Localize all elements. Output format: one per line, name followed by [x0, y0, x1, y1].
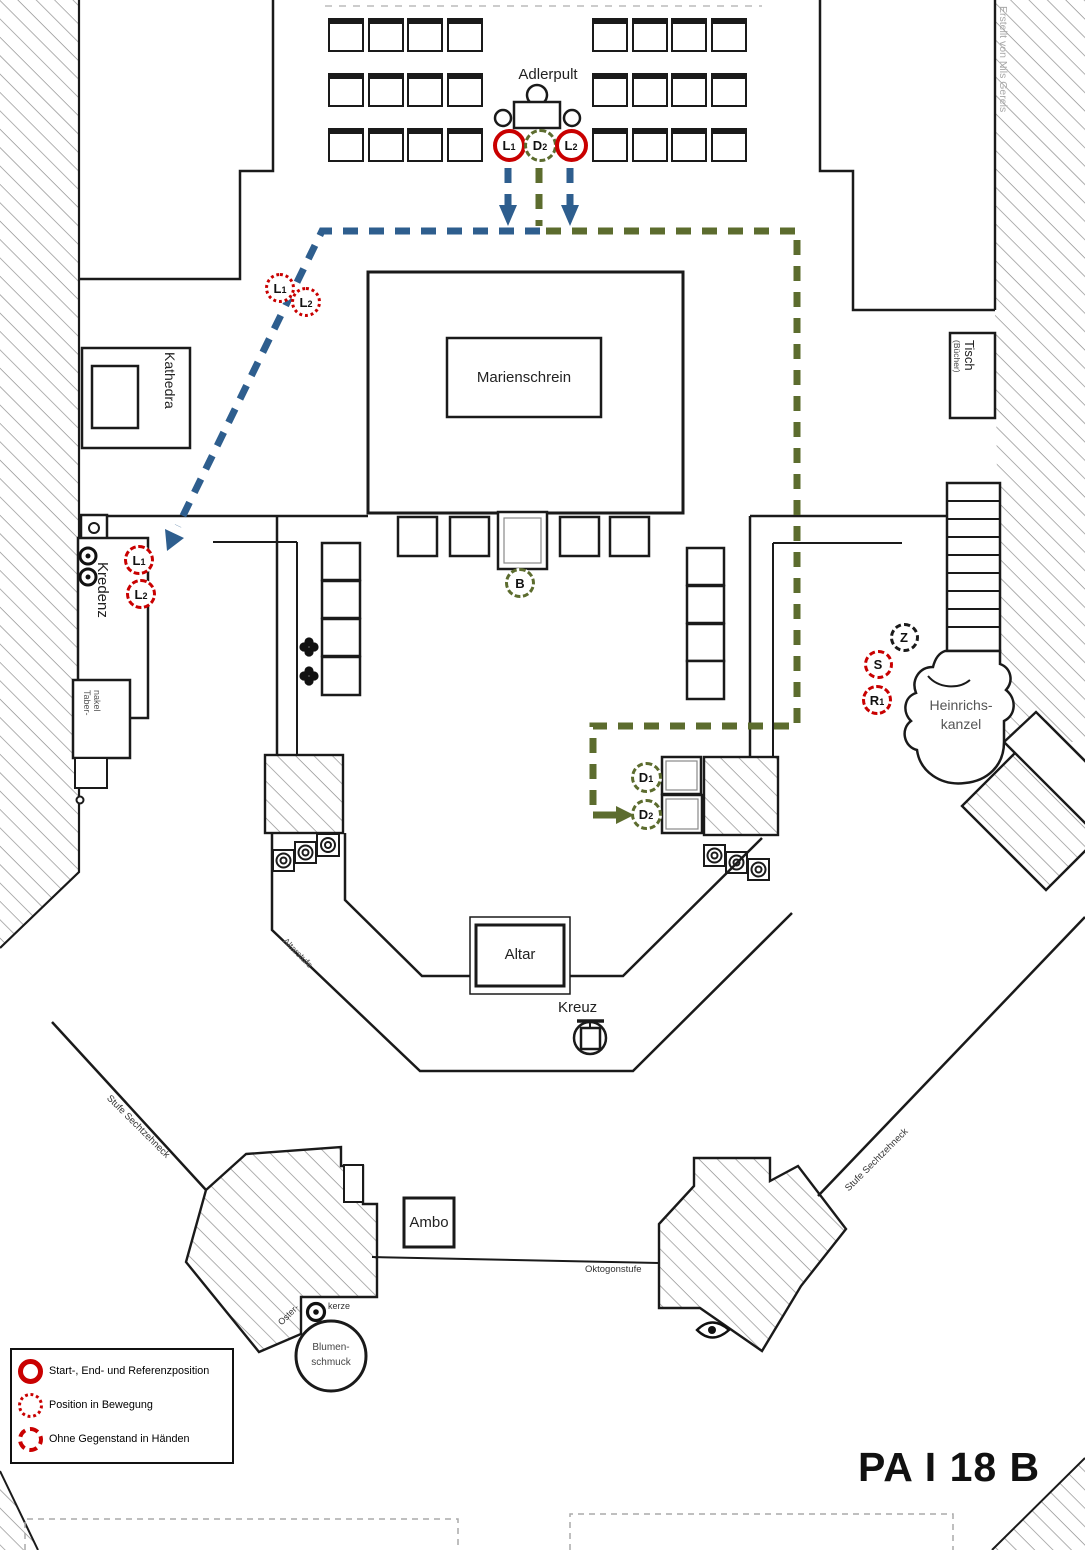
ambo-label: Ambo — [404, 1198, 454, 1247]
hatched-walls — [0, 0, 1085, 1550]
floorplan-graphics — [0, 0, 1085, 1550]
legend-item-label: Position in Bewegung — [49, 1399, 153, 1411]
flower-stand-icons — [299, 637, 318, 685]
tabernakel-label-1: Taber- — [82, 690, 92, 752]
blumenschmuck-label: Blumen- schmuck — [296, 1340, 366, 1370]
osterkerze-symbol — [308, 1304, 325, 1321]
tabernakel-label: Taber- nakel — [82, 690, 102, 752]
oktogonstufe-label: Oktogonstufe — [585, 1264, 642, 1275]
adlerpult-symbol — [495, 85, 580, 128]
kreuz-label: Kreuz — [558, 999, 597, 1016]
legend-item-moving: Position in Bewegung — [18, 1388, 232, 1422]
marienschrein-label: Marienschrein — [447, 338, 601, 417]
tisch-label-main: Tisch — [962, 340, 977, 415]
path-deacon-green-arrow — [593, 806, 634, 824]
heinrichskanzel-label-1: Heinrichs- — [916, 696, 1006, 715]
tabernakel-label-2: nakel — [92, 690, 102, 752]
pillar-left — [265, 755, 343, 833]
credit-label: Erstellt von Nils Gereis — [997, 6, 1009, 176]
tisch-label-sub: (Bücher) — [952, 340, 962, 415]
hall-walls — [79, 0, 995, 310]
faint-outline-bottom-left — [25, 1519, 458, 1550]
legend-item-label: Ohne Gegenstand in Händen — [49, 1433, 189, 1445]
tisch-label: Tisch (Bücher) — [952, 340, 977, 415]
kreuz-symbol — [574, 1021, 606, 1054]
heinrichskanzel-label: Heinrichs- kanzel — [916, 696, 1006, 734]
heinrichskanzel-label-2: kanzel — [916, 715, 1006, 734]
kanzel-stairs — [905, 483, 1014, 783]
church-floorplan: Adlerpult Marienschrein Kathedra Tisch (… — [0, 0, 1085, 1550]
plan-code: PA I 18 B — [858, 1444, 1040, 1491]
kathedra-label: Kathedra — [162, 352, 178, 447]
legend-item-start: Start-, End- und Referenzposition — [18, 1354, 232, 1388]
legend-item-label: Start-, End- und Referenzposition — [49, 1365, 209, 1377]
legend-solid-circle-icon — [18, 1359, 43, 1384]
faint-outline-bottom-right — [570, 1514, 953, 1550]
bench-columns — [322, 543, 724, 833]
legend-dotted-circle-icon — [18, 1393, 43, 1418]
legend-item-empty-hands: Ohne Gegenstand in Händen — [18, 1422, 232, 1456]
adlerpult-label: Adlerpult — [490, 66, 606, 83]
pillar-right — [704, 757, 778, 835]
marienschrein-platform — [368, 272, 683, 569]
osterkerze-label-2: kerze — [328, 1301, 350, 1311]
legend-dashed-circle-icon — [18, 1427, 43, 1452]
blumenschmuck-label-1: Blumen- — [296, 1340, 366, 1355]
kredenz-label: Kredenz — [94, 562, 111, 697]
altar-label: Altar — [470, 917, 570, 991]
floor-rosettes — [273, 834, 769, 880]
legend: Start-, End- und Referenzposition Positi… — [10, 1348, 234, 1464]
blumenschmuck-label-2: schmuck — [296, 1355, 366, 1370]
